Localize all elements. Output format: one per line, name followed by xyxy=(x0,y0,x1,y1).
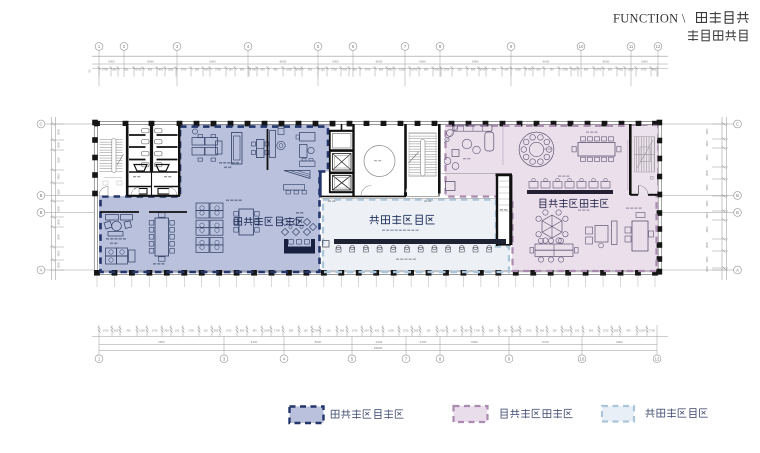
svg-text:1050: 1050 xyxy=(639,328,645,332)
svg-text:3600: 3600 xyxy=(57,234,61,240)
svg-text:8000: 8000 xyxy=(603,60,610,64)
svg-text:1700: 1700 xyxy=(526,328,532,332)
svg-text:1700: 1700 xyxy=(274,328,280,332)
svg-text:150: 150 xyxy=(203,328,208,332)
svg-text:1050: 1050 xyxy=(264,328,270,332)
svg-text:B: B xyxy=(40,210,43,215)
svg-text:1700: 1700 xyxy=(152,328,158,332)
svg-text:1700: 1700 xyxy=(103,328,109,332)
svg-text:1050: 1050 xyxy=(513,328,519,332)
svg-text:150: 150 xyxy=(575,328,580,332)
svg-text:2800: 2800 xyxy=(705,266,709,272)
svg-text:2800: 2800 xyxy=(705,200,709,206)
svg-text:2800: 2800 xyxy=(705,184,709,190)
svg-text:3600: 3600 xyxy=(57,157,61,163)
svg-text:11: 11 xyxy=(629,44,634,49)
svg-text:1700: 1700 xyxy=(603,328,609,332)
svg-text:8000: 8000 xyxy=(376,60,383,64)
svg-text:2750: 2750 xyxy=(313,328,319,332)
svg-text:6000: 6000 xyxy=(332,60,339,64)
svg-text:8000: 8000 xyxy=(471,340,478,344)
svg-text:900: 900 xyxy=(164,328,169,332)
svg-text:450: 450 xyxy=(126,328,131,332)
svg-text:8000: 8000 xyxy=(280,60,287,64)
svg-text:1700: 1700 xyxy=(403,328,409,332)
svg-text:9000: 9000 xyxy=(616,340,623,344)
svg-text:3600: 3600 xyxy=(57,189,61,195)
svg-text:A: A xyxy=(40,268,43,273)
svg-text:8000: 8000 xyxy=(147,60,154,64)
svg-text:B: B xyxy=(736,193,739,198)
svg-text:150: 150 xyxy=(426,328,431,332)
svg-text:6000: 6000 xyxy=(108,60,115,64)
svg-text:1700: 1700 xyxy=(352,328,358,332)
svg-text:2750: 2750 xyxy=(188,328,194,332)
svg-text:900: 900 xyxy=(289,328,294,332)
svg-text:450: 450 xyxy=(252,328,257,332)
svg-text:3600: 3600 xyxy=(57,173,61,179)
svg-text:6400: 6400 xyxy=(376,340,383,344)
svg-text:6000: 6000 xyxy=(641,60,648,64)
svg-text:12: 12 xyxy=(655,357,660,362)
svg-text:900: 900 xyxy=(589,328,594,332)
svg-text:2800: 2800 xyxy=(705,212,709,218)
svg-text:600: 600 xyxy=(614,328,619,332)
svg-text:600: 600 xyxy=(114,328,119,332)
svg-text:4200: 4200 xyxy=(420,340,427,344)
svg-text:900: 900 xyxy=(414,328,419,332)
svg-text:600: 600 xyxy=(240,328,245,332)
svg-text:2800: 2800 xyxy=(705,140,709,146)
svg-text:3600: 3600 xyxy=(57,219,61,225)
svg-text:2750: 2750 xyxy=(439,328,445,332)
svg-text:10: 10 xyxy=(580,357,585,362)
svg-text:450: 450 xyxy=(503,328,508,332)
svg-text:2800: 2800 xyxy=(705,128,709,134)
svg-text:3600: 3600 xyxy=(57,262,61,268)
svg-text:3600: 3600 xyxy=(57,250,61,256)
svg-text:450: 450 xyxy=(626,328,631,332)
svg-text:1700: 1700 xyxy=(474,328,480,332)
svg-text:150: 150 xyxy=(326,328,331,332)
svg-text:900: 900 xyxy=(540,328,545,332)
svg-text:A: A xyxy=(736,268,739,273)
svg-text:6000: 6000 xyxy=(209,60,216,64)
svg-text:2800: 2800 xyxy=(705,154,709,160)
svg-text:FUNCTION \: FUNCTION \ xyxy=(613,12,686,26)
svg-text:2800: 2800 xyxy=(705,256,709,262)
svg-text:10: 10 xyxy=(579,44,584,49)
svg-text:3600: 3600 xyxy=(57,142,61,148)
svg-text:150: 150 xyxy=(175,328,180,332)
svg-text:900: 900 xyxy=(464,328,469,332)
svg-text:150: 150 xyxy=(552,328,557,332)
svg-text:6000: 6000 xyxy=(543,60,550,64)
svg-text:8700: 8700 xyxy=(542,340,549,344)
svg-text:8000: 8000 xyxy=(315,340,322,344)
svg-text:2800: 2800 xyxy=(705,242,709,248)
svg-text:3600: 3600 xyxy=(57,206,61,212)
svg-text:8100: 8100 xyxy=(251,340,258,344)
svg-text:2800: 2800 xyxy=(705,226,709,232)
svg-text:1700: 1700 xyxy=(226,328,232,332)
svg-text:6000: 6000 xyxy=(419,60,426,64)
svg-text:C: C xyxy=(39,122,42,127)
svg-text:B: B xyxy=(736,210,739,215)
svg-text:8000: 8000 xyxy=(472,60,479,64)
svg-text:1700: 1700 xyxy=(649,328,655,332)
svg-text:600: 600 xyxy=(364,328,369,332)
svg-text:1050: 1050 xyxy=(139,328,145,332)
svg-text:2750: 2750 xyxy=(564,328,570,332)
svg-text:12: 12 xyxy=(656,44,661,49)
svg-text:900: 900 xyxy=(214,328,219,332)
svg-text:3600: 3600 xyxy=(57,129,61,135)
svg-text:B: B xyxy=(40,193,43,198)
svg-text:C: C xyxy=(736,122,739,127)
svg-text:450: 450 xyxy=(375,328,380,332)
svg-text:150: 150 xyxy=(452,328,457,332)
svg-text:1050: 1050 xyxy=(388,328,394,332)
svg-text:150: 150 xyxy=(303,328,308,332)
svg-text:600: 600 xyxy=(489,328,494,332)
svg-text:64800: 64800 xyxy=(374,346,383,350)
svg-text:4500: 4500 xyxy=(158,340,165,344)
svg-text:900: 900 xyxy=(340,328,345,332)
svg-text:2800: 2800 xyxy=(705,170,709,176)
